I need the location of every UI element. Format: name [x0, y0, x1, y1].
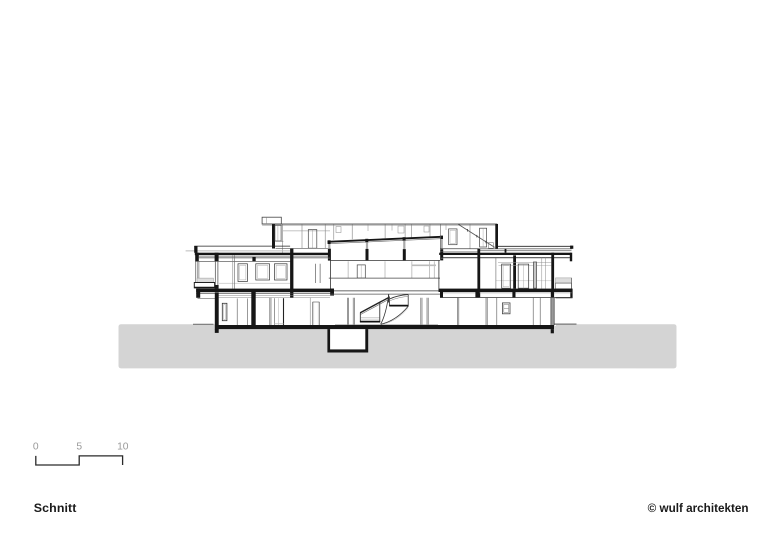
svg-text:10: 10: [117, 441, 129, 452]
svg-text:5: 5: [76, 441, 82, 452]
svg-text:Schnitt: Schnitt: [34, 501, 77, 515]
svg-text:0: 0: [33, 441, 39, 452]
svg-text:© wulf architekten: © wulf architekten: [648, 502, 749, 515]
